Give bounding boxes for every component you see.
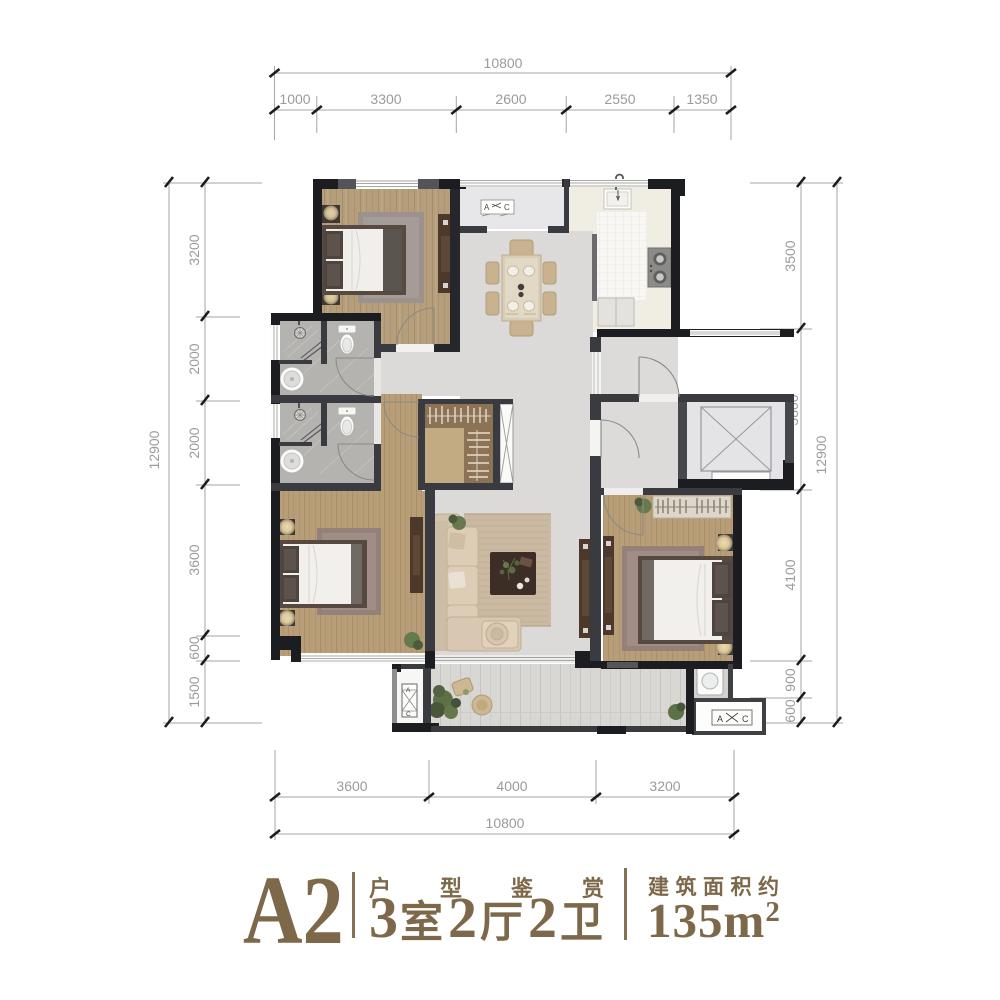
- svg-text:1000: 1000: [279, 91, 310, 107]
- svg-text:600: 600: [186, 636, 202, 660]
- svg-text:A: A: [717, 714, 723, 724]
- svg-text:4100: 4100: [782, 559, 798, 590]
- svg-text:2550: 2550: [604, 91, 635, 107]
- svg-text:10800: 10800: [484, 55, 523, 71]
- svg-text:1500: 1500: [186, 676, 202, 707]
- svg-text:C: C: [742, 714, 749, 724]
- svg-text:600: 600: [782, 699, 798, 723]
- svg-text:135m2: 135m2: [647, 895, 780, 948]
- svg-text:2000: 2000: [186, 427, 202, 458]
- svg-text:A: A: [406, 687, 411, 694]
- svg-text:12900: 12900: [813, 435, 829, 474]
- svg-text:3300: 3300: [370, 91, 401, 107]
- svg-text:10800: 10800: [486, 815, 525, 831]
- svg-text:A: A: [484, 203, 490, 212]
- svg-text:1350: 1350: [686, 91, 717, 107]
- svg-text:3500: 3500: [782, 240, 798, 271]
- svg-text:C: C: [406, 711, 411, 718]
- svg-text:3200: 3200: [649, 778, 680, 794]
- svg-text:C: C: [504, 203, 510, 212]
- svg-text:3200: 3200: [186, 234, 202, 265]
- svg-text:3室2厅2卫: 3室2厅2卫: [369, 885, 603, 950]
- svg-text:12900: 12900: [146, 430, 162, 469]
- svg-text:2000: 2000: [186, 343, 202, 374]
- svg-text:4000: 4000: [496, 778, 527, 794]
- svg-text:2600: 2600: [495, 91, 526, 107]
- svg-text:3600: 3600: [336, 778, 367, 794]
- svg-text:3600: 3600: [186, 544, 202, 575]
- svg-text:900: 900: [782, 668, 798, 692]
